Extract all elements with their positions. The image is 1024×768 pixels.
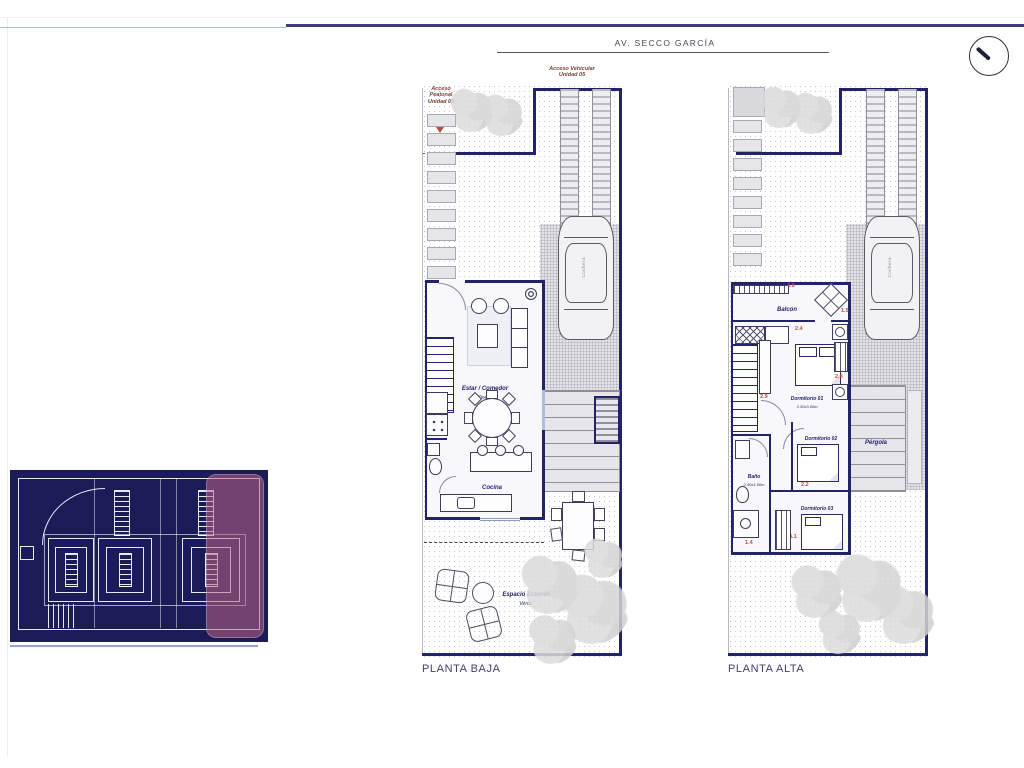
pa-balcony-wall: [731, 320, 815, 322]
pb-house-bottom-wall-a: [425, 517, 480, 520]
pa-bed-dorm2: [797, 444, 839, 482]
patio-chair: [550, 527, 563, 541]
stepping-stone: [733, 196, 762, 209]
pa-balcony-wall-b: [831, 320, 851, 322]
stepping-stone: [733, 215, 762, 228]
floorplan-sheet: AV. SECCO GARCÍA Acceso Peatonal Unidad …: [0, 0, 1024, 768]
pb-house-right-wall-b: [542, 430, 545, 520]
kp-selected-unit-highlight: [206, 474, 264, 638]
pb-lounge-chair: [434, 568, 470, 604]
car-rear-line: [870, 309, 914, 310]
planta-baja-title: PLANTA BAJA: [422, 663, 501, 675]
stepping-stone: [427, 228, 456, 241]
pa-bath-toilet: [736, 486, 749, 503]
pa-bath-partition: [769, 434, 771, 552]
bed-pillow: [805, 517, 821, 526]
kp-gate-box: [20, 546, 34, 560]
room-name: Pérgola: [865, 440, 887, 446]
car-windshield-line: [870, 237, 914, 238]
kp-unit: [98, 538, 152, 602]
pb-house-right-wall-a: [542, 280, 545, 390]
pb-house-right-window: [542, 390, 545, 430]
tree: [480, 92, 524, 136]
dim-1-5: 1.5: [841, 308, 849, 314]
pb-armchair: [471, 298, 487, 314]
stepping-stone: [427, 133, 456, 146]
stepping-stone: [427, 152, 456, 165]
dim-1-4: 1.4: [745, 540, 753, 546]
pa-garage-label: Cochera: [887, 257, 892, 278]
pb-right-wall: [619, 88, 622, 656]
stepping-stone: [733, 139, 762, 152]
stepping-stone: [427, 209, 456, 222]
pa-top-wall-left: [736, 152, 842, 155]
pb-left-boundary: [422, 88, 423, 653]
pa-shelving: [834, 342, 848, 372]
pa-left-boundary: [728, 88, 729, 653]
pa-bottom-wall: [728, 653, 928, 656]
patio-chair: [551, 508, 562, 521]
pa-car: Cochera: [864, 216, 920, 340]
pa-bath-door-arc: [749, 438, 768, 457]
pb-car: Cochera: [558, 216, 614, 340]
frame-left-line: [7, 17, 8, 757]
stepping-stone: [733, 120, 762, 133]
pa-top-wall-vertical: [839, 88, 842, 154]
pb-equipment-box: [594, 396, 620, 444]
dining-chair: [486, 437, 498, 446]
room-name: Estar / Comedor: [462, 386, 508, 392]
kp-unit-stairs: [65, 553, 78, 587]
pb-wc-sink: [427, 443, 440, 456]
pa-wardrobe-strip: [759, 340, 771, 394]
pb-garage-label: Cochera: [581, 257, 586, 278]
stepping-stone: [427, 190, 456, 203]
planta-alta-plan: Cochera Pérgola 4.8 Balcón 1.5: [728, 84, 928, 660]
pa-washer-drum: [835, 327, 845, 337]
pa-house: 4.8 Balcón 1.5 2.4 Dormitorio 01 3.30x3.…: [731, 282, 851, 555]
pb-house-patio-door: [480, 518, 520, 519]
pb-lounge-chair: [465, 605, 504, 644]
pb-house: Estar / Comedor 5.50x4.60m Cocina 4.05x1…: [425, 280, 545, 520]
kitchen-stool: [477, 445, 488, 456]
pb-kitchen-counter: [440, 494, 512, 512]
pb-top-wall-vertical: [533, 88, 536, 154]
pb-house-top-wall-a: [425, 280, 439, 283]
kp-hatch-steps: [48, 604, 76, 628]
pa-washer2-drum: [835, 387, 845, 397]
dim-4-8: 4.8: [787, 283, 795, 289]
room-name: Balcón: [777, 307, 797, 313]
car-roof: [565, 243, 607, 303]
pb-tv-speaker-icon: [525, 288, 537, 300]
pb-coffee-table: [477, 324, 498, 348]
room-name: Dormitorio 01: [791, 396, 824, 402]
pb-kitchen-sink: [457, 497, 475, 509]
stepping-stone: [733, 253, 762, 266]
stepping-stone: [733, 158, 762, 171]
bed-pillow: [801, 447, 817, 456]
pa-linen-closet: [775, 510, 791, 550]
pb-wc-divider: [425, 438, 447, 440]
tree: [790, 90, 834, 134]
car-windshield-line: [564, 237, 608, 238]
pa-balcony-label: Balcón: [765, 297, 809, 316]
top-navy-bar: [286, 24, 1024, 27]
pa-stairs: [732, 344, 758, 432]
dim-2-2: 2.2: [801, 482, 809, 488]
pb-sofa: [511, 308, 528, 368]
dining-chair: [464, 412, 473, 424]
tree: [526, 612, 578, 664]
pb-bottom-wall: [422, 653, 622, 656]
bed-fold: [833, 540, 842, 549]
pb-fridge: [426, 392, 448, 414]
dining-chair: [486, 390, 498, 399]
planta-baja-plan: Acceso Peatonal Unidad 05 Acceso Vehicul…: [422, 84, 622, 660]
car-roof: [871, 243, 913, 303]
keyplan-underline: [10, 645, 258, 647]
pa-dorm-divider: [769, 490, 851, 492]
room-name: Dormitorio 03: [801, 506, 834, 512]
pb-level-dashed-line: [424, 542, 544, 543]
pa-balcony-railing: [733, 285, 789, 294]
pa-dorm-partition-v: [791, 422, 793, 492]
pa-dorm1-label: Dormitorio 01 3.30x3.60m: [779, 386, 835, 410]
pa-bed-dorm3: [801, 514, 843, 550]
pa-house-bottom-wall: [731, 552, 851, 555]
dim-2-8: 2.8: [835, 374, 843, 380]
kp-divider: [94, 478, 95, 628]
street-edge-line: [497, 52, 829, 53]
room-dims: 3.30x3.60m: [779, 405, 835, 410]
bed-pillow: [799, 347, 817, 357]
north-compass-icon: [969, 36, 1009, 76]
room-name: Dormitorio 02: [805, 436, 838, 442]
stepping-stone: [427, 247, 456, 260]
keyplan: [10, 470, 268, 642]
frame-top-line: [0, 17, 1024, 18]
pb-wc-toilet: [429, 458, 442, 475]
car-rear-line: [564, 309, 608, 310]
kp-divider: [176, 478, 177, 628]
pa-bath-label: Baño 2.40x1.60m: [739, 464, 769, 488]
room-name: Cocina: [482, 485, 502, 491]
pa-mid-wall: [731, 434, 771, 436]
street-label: AV. SECCO GARCÍA: [575, 38, 755, 48]
kp-unit-stairs: [119, 553, 132, 587]
pb-wc-door-arc: [439, 476, 456, 493]
kitchen-stool: [513, 445, 524, 456]
bed-fold: [829, 472, 838, 481]
stepping-stone: [427, 114, 456, 127]
patio-chair: [572, 491, 585, 502]
teal-accent-line: [0, 27, 286, 28]
pb-house-top-wall-b: [465, 280, 545, 283]
kp-unit: [48, 538, 94, 602]
pa-house-right-wall: [848, 282, 851, 555]
pb-oven: [426, 414, 448, 436]
kp-divider: [160, 478, 161, 628]
pb-lounge-table: [472, 582, 494, 604]
planta-alta-title: PLANTA ALTA: [728, 663, 804, 675]
dim-2-4: 2.4: [795, 326, 803, 332]
room-name: Baño: [748, 474, 761, 480]
pb-armchair: [493, 298, 509, 314]
stepping-stone: [427, 266, 456, 279]
pb-access-vehicular-label: Acceso Vehicular Unidad 05: [548, 66, 596, 79]
north-needle-icon: [976, 47, 991, 61]
pa-pergola-beam: [907, 390, 922, 484]
tree: [816, 608, 862, 654]
tree: [582, 536, 624, 578]
patio-chair: [594, 508, 605, 521]
tree: [874, 582, 936, 644]
stepping-stone: [733, 234, 762, 247]
pa-bath-sink: [735, 440, 750, 459]
stepping-stone: [733, 177, 762, 190]
pa-right-wall: [925, 88, 928, 656]
kitchen-stool: [495, 445, 506, 456]
dining-chair: [511, 412, 520, 424]
pb-house-bottom-wall-b: [520, 517, 545, 520]
stepping-stone: [427, 171, 456, 184]
pa-pergola-label: Pérgola: [852, 430, 900, 449]
kp-entry-stairs: [114, 490, 130, 536]
pa-shower-drain: [740, 518, 751, 529]
pb-entry-door-arc: [439, 283, 466, 310]
